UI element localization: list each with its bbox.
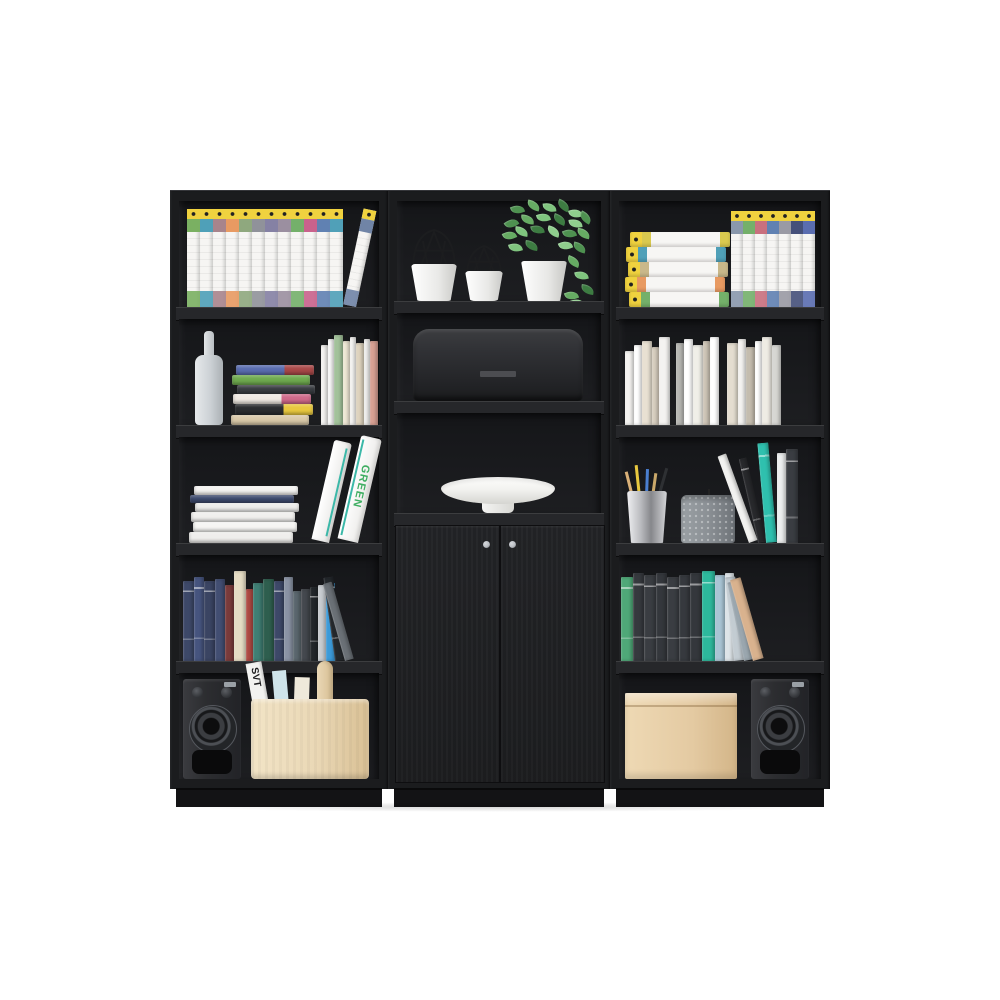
plant-leaf: [576, 228, 591, 240]
book: [659, 337, 670, 425]
book: [246, 589, 253, 661]
encyclopedia-volume: [330, 209, 343, 307]
plant-leaf: [562, 227, 577, 240]
plant-leaf: [558, 239, 573, 252]
ency-top-band: [731, 211, 743, 221]
ency-pages: [803, 234, 815, 291]
book: [676, 343, 684, 425]
wire-decor-large: [411, 227, 457, 301]
speaker-port: [760, 750, 800, 774]
ency-color-band: [252, 219, 265, 232]
speaker-knob: [760, 687, 771, 698]
ency-label: [343, 289, 359, 307]
encyclopedia-volume: [187, 209, 200, 307]
ency-pages: [239, 232, 252, 291]
book: [621, 577, 633, 661]
book: [642, 341, 652, 425]
shelf-opening: [397, 413, 601, 513]
ency-color-band: [791, 221, 803, 234]
encyclopedia-volume: [731, 211, 743, 307]
ency-pages: [252, 232, 265, 291]
book: [738, 339, 746, 425]
plant-leaf: [526, 199, 541, 211]
ency-pages: [187, 232, 200, 291]
speaker: [183, 679, 241, 779]
ency-pages: [755, 234, 767, 291]
encyclopedia-volume: [291, 209, 304, 307]
ency-top-band: [767, 211, 779, 221]
speaker-woofer: [757, 705, 805, 753]
stacked-book: [233, 394, 311, 404]
speaker: [751, 679, 809, 779]
book: [274, 581, 284, 661]
plant-leaf: [530, 224, 545, 236]
ency-top-band: [213, 209, 226, 219]
ency-color-band: [239, 219, 252, 232]
pencil-cup: [627, 461, 667, 543]
cabinet-door-right: [500, 525, 605, 783]
book: [777, 453, 786, 543]
ency-label: [213, 291, 226, 307]
ency-color-band: [226, 219, 239, 232]
ency-label: [803, 291, 815, 307]
ency-color-band: [187, 219, 200, 232]
speaker-knob: [221, 687, 232, 698]
ency-top-band: [791, 211, 803, 221]
speaker-woofer: [189, 705, 237, 753]
ency-pages: [317, 232, 330, 291]
stacked-book: [237, 385, 315, 394]
ency-label: [239, 291, 252, 307]
breadbin-label: [480, 371, 516, 377]
encyclopedia-volume: [200, 209, 213, 307]
book: [679, 575, 690, 661]
ency-pages: [226, 232, 239, 291]
shelf-opening: [179, 201, 379, 307]
stacked-book: [189, 532, 293, 543]
white-pot: [465, 271, 503, 301]
stacked-book: [193, 522, 297, 532]
encyclopedia-stack: [625, 232, 733, 307]
metal-cup: [627, 491, 667, 543]
ency-pages: [278, 232, 291, 291]
book: [321, 345, 328, 425]
book: [284, 577, 293, 661]
ency-top-band: [239, 209, 252, 219]
ency-top-band: [803, 211, 815, 221]
book: [293, 591, 301, 661]
ency-label: [731, 291, 743, 307]
ency-color-band: [265, 219, 278, 232]
book: [215, 579, 225, 661]
encyclopedia-volume: [803, 211, 815, 307]
stacked-book: [194, 486, 298, 495]
plant-leaf: [524, 240, 538, 251]
encyclopedia-volume: [743, 211, 755, 307]
ency-pages: [291, 232, 304, 291]
book: [755, 341, 762, 425]
ency-color-band: [304, 219, 317, 232]
ency-pages: [347, 231, 372, 291]
stacked-book: [235, 404, 313, 415]
encyclopedia-volume-flat: [629, 292, 729, 307]
stacked-book: [195, 503, 299, 512]
book: [356, 343, 364, 425]
box-lid-seam: [625, 705, 737, 707]
encyclopedia-volume-flat: [626, 247, 726, 262]
book: [762, 337, 772, 425]
ency-color-band: [755, 221, 767, 234]
plant-leaf: [566, 255, 581, 268]
ency-color-band: [767, 221, 779, 234]
plant-leaf: [552, 213, 567, 226]
ency-label: [278, 291, 291, 307]
ency-label: [330, 291, 343, 307]
bottle-body: [195, 355, 223, 425]
book: [225, 585, 234, 661]
box-lid: [625, 693, 737, 705]
ency-color-band: [743, 221, 755, 234]
ency-pages: [767, 234, 779, 291]
ency-top-band: [779, 211, 791, 221]
ency-label: [779, 291, 791, 307]
ency-label: [226, 291, 239, 307]
encyclopedia-volume: [791, 211, 803, 307]
ency-label: [187, 291, 200, 307]
encyclopedia-volume: [317, 209, 330, 307]
left-bookcase: GREENSVT: [170, 190, 388, 789]
ency-top-band: [304, 209, 317, 219]
book: [656, 573, 667, 661]
encyclopedia-volume-flat: [628, 262, 728, 277]
ency-pages: [213, 232, 226, 291]
door-knob: [509, 541, 516, 548]
ency-label: [743, 291, 755, 307]
shelf-opening: [619, 319, 821, 425]
book: [318, 585, 326, 661]
ency-pages: [330, 232, 343, 291]
ency-top-band: [330, 209, 343, 219]
ency-top-band: [291, 209, 304, 219]
book: [343, 341, 350, 425]
book: [786, 449, 798, 543]
ency-label: [767, 291, 779, 307]
book: [625, 351, 634, 425]
encyclopedia-volume-flat: [625, 277, 725, 292]
bowl-body: [441, 477, 555, 504]
ency-top-band: [317, 209, 330, 219]
encyclopedia-volume: [343, 208, 376, 307]
cabinet-doors: [395, 525, 603, 781]
bread-bin: [413, 329, 583, 401]
shelf-opening: [179, 555, 379, 661]
shelf-opening: [619, 437, 821, 543]
shelf-opening: [619, 555, 821, 661]
ency-top-band: [265, 209, 278, 219]
ency-label: [200, 291, 213, 307]
ency-top-band: [187, 209, 200, 219]
book: [334, 335, 343, 425]
plant-pot: [521, 261, 567, 301]
decor-bowl: [441, 471, 555, 513]
encyclopedia-volume: [252, 209, 265, 307]
encyclopedia-volume: [767, 211, 779, 307]
plant-leaf: [546, 225, 561, 238]
center-cabinet: [388, 190, 610, 789]
ency-top-band: [278, 209, 291, 219]
book: [667, 577, 679, 661]
book: [746, 347, 755, 425]
product-image: GREENSVT: [0, 0, 1000, 1000]
ency-color-band: [779, 221, 791, 234]
ency-label: [317, 291, 330, 307]
book: [772, 345, 781, 425]
wire-dome: [411, 227, 457, 270]
stacked-book: [231, 415, 309, 425]
encyclopedia-volume: [213, 209, 226, 307]
speaker-knob: [789, 687, 800, 698]
book: [727, 343, 738, 425]
ency-label: [791, 291, 803, 307]
ency-pages: [265, 232, 278, 291]
ency-pages: [743, 234, 755, 291]
book: [253, 583, 263, 661]
plant-leaf: [521, 214, 535, 224]
cabinet-door-left: [395, 525, 500, 783]
stacked-book: [236, 365, 314, 375]
book: [652, 347, 659, 425]
ency-label: [252, 291, 265, 307]
speaker-knob: [192, 687, 203, 698]
encyclopedia-volume-flat: [630, 232, 730, 247]
encyclopedia-volume: [239, 209, 252, 307]
book: [702, 571, 715, 661]
book: [183, 581, 194, 661]
speaker-port: [192, 750, 232, 774]
storage-box: [625, 693, 737, 779]
shelf-opening: [619, 201, 821, 307]
ency-pages: [200, 232, 213, 291]
encyclopedia-volume: [304, 209, 317, 307]
encyclopedia-volume: [779, 211, 791, 307]
ency-pages: [731, 234, 743, 291]
encyclopedia-volume: [755, 211, 767, 307]
book: [684, 339, 693, 425]
book: [690, 573, 702, 661]
floor-shadow: [176, 802, 824, 812]
ency-color-band: [291, 219, 304, 232]
bookcase-wall-unit: GREENSVT: [170, 190, 830, 805]
shelf-opening: [397, 201, 601, 301]
book: [263, 579, 274, 661]
encyclopedia-volume: [265, 209, 278, 307]
ency-color-band: [803, 221, 815, 234]
ency-top-band: [743, 211, 755, 221]
shelf-opening: SVT: [179, 673, 379, 779]
book: [644, 575, 656, 661]
ency-color-band: [330, 219, 343, 232]
ency-top-band: [200, 209, 213, 219]
book: [710, 337, 719, 425]
stacked-book: [232, 375, 310, 385]
encyclopedia-volume: [278, 209, 291, 307]
caddy-body: [251, 699, 369, 779]
ency-color-band: [278, 219, 291, 232]
door-knob: [483, 541, 490, 548]
plant-leaf: [508, 241, 523, 253]
wire-decor-small: [465, 243, 503, 301]
book: [693, 345, 703, 425]
ency-pages: [779, 234, 791, 291]
ency-color-band: [200, 219, 213, 232]
book: [194, 577, 204, 661]
ency-color-band: [317, 219, 330, 232]
shelf-opening: [179, 319, 379, 425]
book: [634, 345, 642, 425]
stacked-book: [191, 512, 295, 522]
ency-pages: [791, 234, 803, 291]
ency-top-band: [252, 209, 265, 219]
ency-top-band: [755, 211, 767, 221]
storage-caddy: SVT: [251, 659, 369, 779]
shelf-opening: [619, 673, 821, 779]
plant-leaf: [580, 284, 594, 295]
vase-bottle: [195, 333, 223, 425]
ency-label: [304, 291, 317, 307]
magazine-title: SVT: [248, 667, 262, 688]
white-pot: [411, 264, 457, 301]
plant-leaf: [574, 270, 589, 282]
candle-body: [681, 495, 735, 543]
ency-top-band: [226, 209, 239, 219]
book: [703, 341, 710, 425]
ency-label: [265, 291, 278, 307]
plant-leaf: [543, 202, 557, 212]
ency-label: [755, 291, 767, 307]
plant-leaf: [572, 241, 587, 253]
ency-pages: [304, 232, 317, 291]
right-bookcase: [610, 190, 830, 789]
stacked-book: [190, 495, 294, 503]
book: [204, 581, 215, 661]
book: [715, 575, 725, 661]
book: [234, 571, 246, 661]
candle: [681, 489, 735, 543]
shelf-opening: GREEN: [179, 437, 379, 543]
ency-color-band: [731, 221, 743, 234]
ency-label: [291, 291, 304, 307]
book: [301, 589, 310, 661]
book: [633, 573, 644, 661]
shelf-opening: [397, 313, 601, 401]
book: [310, 587, 318, 661]
book: [370, 341, 378, 425]
ency-color-band: [213, 219, 226, 232]
plant-leaf: [536, 211, 551, 224]
encyclopedia-volume: [226, 209, 239, 307]
